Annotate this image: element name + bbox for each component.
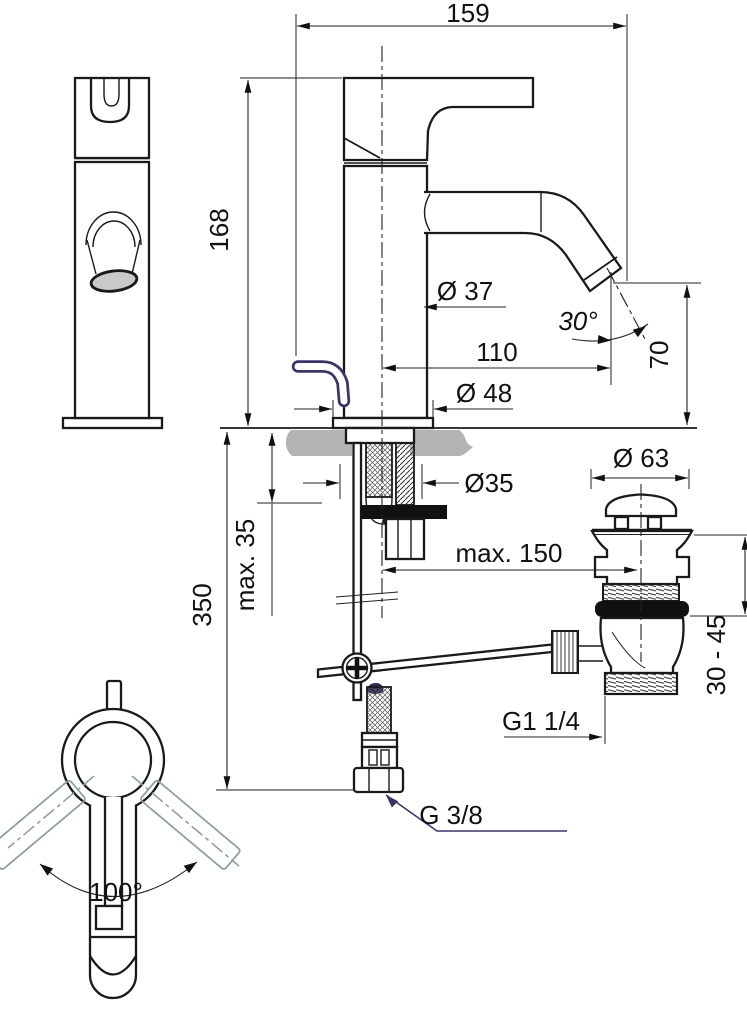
dim-height-body: 168	[204, 208, 234, 251]
faucet-handle-lever	[344, 78, 533, 160]
countertop-left-fill	[286, 430, 352, 456]
top-view-swivel: 100°	[0, 681, 241, 998]
base-plate	[333, 418, 433, 428]
countertop-right-fill	[410, 430, 473, 456]
dim-dia-hole: Ø35	[464, 468, 513, 498]
technical-drawing-page: 100° 159 168 Ø 37 30	[0, 0, 747, 1024]
break-marks	[336, 592, 398, 604]
link-clamp-screw	[343, 654, 372, 683]
front-handle-block	[75, 78, 149, 158]
base-collar	[346, 428, 414, 443]
topview-body-inner	[75, 722, 151, 798]
dim-hose-length: 350	[187, 583, 217, 626]
flex-hose-upper	[366, 443, 392, 497]
mounting-nut	[386, 519, 424, 559]
dim-spout-angle: 30°	[558, 306, 597, 336]
waste-gasket	[595, 601, 689, 617]
dim-width-total: 159	[446, 0, 489, 28]
front-view	[63, 78, 162, 428]
dim-dia-waste-cap: Ø 63	[613, 443, 669, 473]
dim-waste-clamp-range: 30 - 45	[701, 615, 731, 696]
dim-spout-height: 70	[644, 341, 674, 370]
installation-view	[318, 443, 552, 792]
dimensions: 159 168 Ø 37 30° 110 70 Ø 48 Ø35 max. 35…	[187, 0, 747, 831]
dim-supply-thread: G 3/8	[419, 800, 483, 830]
dim-dia-body: Ø 37	[437, 276, 493, 306]
pull-rod-hook	[298, 367, 344, 402]
dim-dia-base: Ø 48	[456, 378, 512, 408]
faucet-body	[344, 166, 427, 418]
faucet-dimension-drawing: 100° 159 168 Ø 37 30	[0, 0, 747, 1024]
waste-lower-body	[600, 618, 683, 673]
waste-tail-thread	[605, 673, 677, 694]
waste-knurled-connector	[552, 631, 578, 673]
dim-max-deck: max. 35	[230, 519, 260, 612]
swivel-position-right	[140, 780, 241, 871]
mounting-washer	[361, 505, 447, 519]
waste-assembly	[552, 495, 692, 695]
waste-upper-body	[592, 531, 692, 584]
supply-nut	[354, 768, 403, 792]
dim-swivel-angle: 100°	[89, 877, 143, 907]
dim-waste-thread: G1 1/4	[502, 706, 580, 736]
dim-max-rod-reach: max. 150	[456, 538, 563, 568]
threaded-stud	[396, 443, 414, 505]
front-base-plate	[63, 418, 162, 428]
dim-spout-reach: 110	[476, 337, 517, 367]
